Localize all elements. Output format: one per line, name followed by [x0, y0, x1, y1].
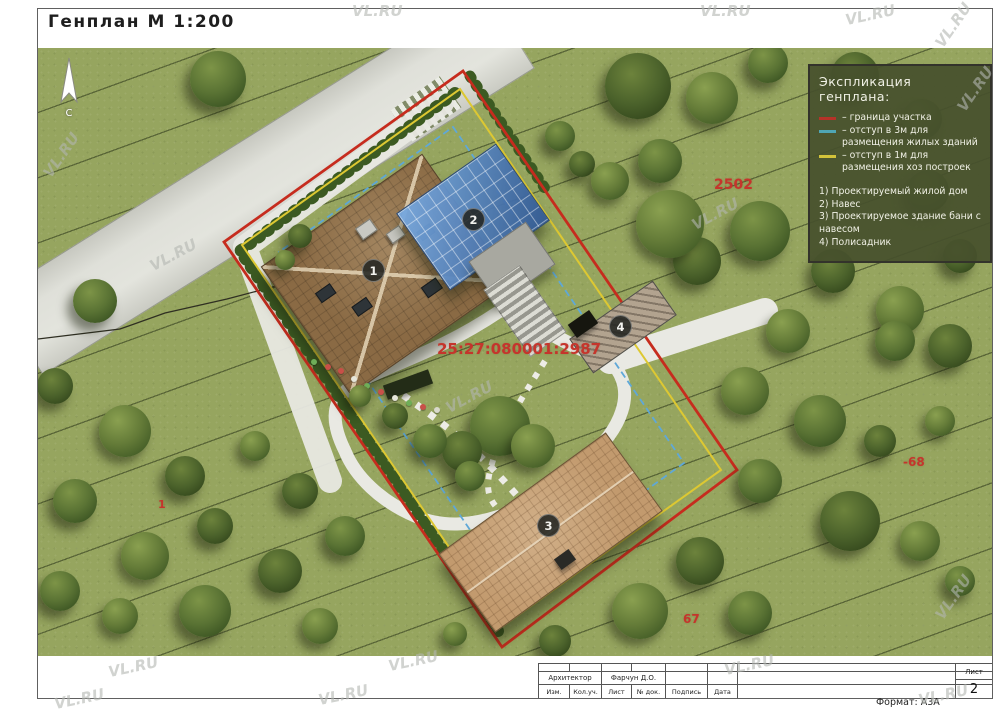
drawing-sheet: Генплан М 1:200: [0, 0, 1000, 710]
stamp-architect-label: Архитектор: [539, 672, 602, 684]
red-annotation: 1: [158, 498, 166, 511]
tree: [605, 53, 671, 119]
legend-lines: – граница участка– отступ в 3м для разме…: [819, 112, 981, 174]
page-title: Генплан М 1:200: [48, 12, 235, 32]
north-arrow: С: [54, 56, 84, 119]
tree: [545, 121, 575, 151]
tree: [190, 51, 246, 107]
tree: [925, 406, 955, 436]
tree: [413, 424, 447, 458]
tree: [511, 424, 555, 468]
marker-front-garden: 4: [609, 315, 632, 338]
tree: [686, 72, 738, 124]
legend-title: Экспликация генплана:: [819, 74, 981, 104]
bottom-strip: Архитектор Фарчун Д.О. Изм.Кол.уч.Лист№ …: [38, 656, 992, 698]
legend-items: 1) Проектируемый жилой дом2) Навес3) Про…: [819, 186, 981, 249]
tree: [900, 521, 940, 561]
legend-line: – отступ в 3м для размещения жилых здани…: [819, 125, 981, 149]
tree: [721, 367, 769, 415]
tree: [53, 479, 97, 523]
legend-line-label: – отступ в 1м для размещения хоз построе…: [842, 150, 981, 174]
tree: [945, 566, 975, 596]
tree: [638, 139, 682, 183]
tree: [73, 279, 117, 323]
red-annotation: -68: [903, 455, 925, 469]
tree: [382, 403, 408, 429]
site-plan-view: 1234 250225:27:080001:2987-68671 С Экспл…: [38, 48, 992, 657]
tree: [794, 395, 846, 447]
north-label: С: [54, 108, 84, 119]
tree: [121, 532, 169, 580]
stamp-empty-cell: [738, 664, 956, 698]
format-label: Формат: А3А: [876, 697, 940, 708]
tree: [38, 368, 73, 404]
marker-canopy: 2: [462, 208, 485, 231]
tree: [728, 591, 772, 635]
legend-line-label: – отступ в 3м для размещения жилых здани…: [842, 125, 981, 149]
stamp-table: Архитектор Фарчун Д.О. Изм.Кол.уч.Лист№ …: [538, 663, 992, 698]
legend-item: 1) Проектируемый жилой дом: [819, 186, 981, 199]
tree: [676, 537, 724, 585]
legend-item: 3) Проектируемое здание бани с навесом: [819, 211, 981, 236]
red-annotation: 67: [683, 612, 700, 626]
legend-item: 4) Полисадник: [819, 237, 981, 250]
red-annotation: 25:27:080001:2987: [437, 340, 601, 358]
tree: [258, 549, 302, 593]
tree: [349, 385, 371, 407]
legend-box: Экспликация генплана: – граница участка–…: [808, 64, 992, 263]
tree: [539, 625, 571, 657]
tree: [443, 622, 467, 646]
tree: [99, 405, 151, 457]
tree: [928, 324, 972, 368]
tree: [730, 201, 790, 261]
stamp-architect-name: Фарчун Д.О.: [602, 672, 666, 684]
tree: [820, 491, 880, 551]
tree: [102, 598, 138, 634]
stamp-col-header: Дата: [708, 685, 738, 698]
tree: [569, 151, 595, 177]
stamp-col-header: Кол.уч.: [570, 685, 602, 698]
tree: [325, 516, 365, 556]
marker-bathhouse: 3: [537, 514, 560, 537]
tree: [455, 461, 485, 491]
stamp-col-header: Подпись: [666, 685, 708, 698]
red-annotation: 2502: [714, 177, 753, 193]
tree: [40, 571, 80, 611]
tree: [275, 250, 295, 270]
tree: [302, 608, 338, 644]
legend-line-swatch: [819, 155, 836, 158]
legend-line-label: – граница участка: [842, 112, 932, 124]
tree: [636, 190, 704, 258]
tree: [197, 508, 233, 544]
legend-line: – отступ в 1м для размещения хоз построе…: [819, 150, 981, 174]
stamp-col-header: Изм.: [539, 685, 570, 698]
tree: [165, 456, 205, 496]
tree: [738, 459, 782, 503]
tree: [612, 583, 668, 639]
north-arrow-icon: [56, 56, 82, 108]
stamp-sheet-label: Лист: [956, 664, 992, 680]
legend-line-swatch: [819, 130, 836, 133]
stamp-sheet-number: 2: [956, 680, 992, 698]
tree: [179, 585, 231, 637]
tree: [748, 48, 788, 83]
tree: [864, 425, 896, 457]
tree: [240, 431, 270, 461]
legend-line: – граница участка: [819, 112, 981, 124]
stamp-sheet-box: Лист 2: [956, 664, 992, 698]
tree: [591, 162, 629, 200]
sheet-frame: Генплан М 1:200: [37, 8, 993, 699]
tree: [288, 224, 312, 248]
stamp-col-header: № док.: [632, 685, 666, 698]
tree: [766, 309, 810, 353]
tree: [282, 473, 318, 509]
legend-item: 2) Навес: [819, 199, 981, 212]
stamp-col-header: Лист: [602, 685, 632, 698]
tree: [875, 321, 915, 361]
legend-line-swatch: [819, 117, 836, 120]
marker-house: 1: [362, 259, 385, 282]
